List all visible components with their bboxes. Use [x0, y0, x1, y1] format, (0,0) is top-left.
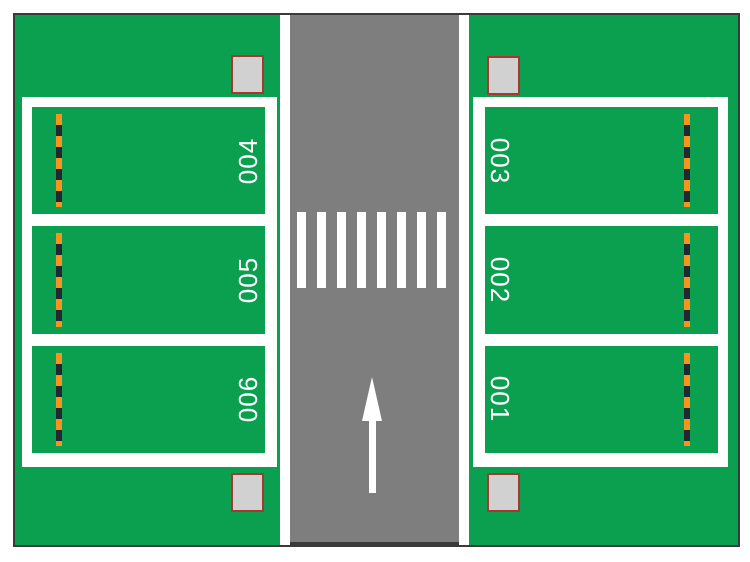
diagram-inner: 004 005 006 003 002 001: [15, 15, 738, 545]
crosswalk-stripe: [297, 212, 306, 288]
crosswalk-stripe: [317, 212, 326, 288]
parking-space-003: 003: [485, 107, 718, 214]
space-label: 004: [235, 137, 261, 183]
crosswalk-stripe: [397, 212, 406, 288]
crosswalk-stripe: [357, 212, 366, 288]
parking-lot-diagram: 004 005 006 003 002 001: [13, 13, 740, 547]
dashed-sensor-strip: [684, 233, 690, 326]
space-label: 005: [235, 257, 261, 303]
dashed-sensor-strip: [56, 114, 62, 207]
road-edge-stripe-left: [280, 15, 290, 545]
dashed-sensor-strip: [56, 353, 62, 446]
road: [290, 15, 459, 545]
crosswalk-stripe: [437, 212, 446, 288]
space-label: 002: [487, 257, 513, 303]
crosswalk: [297, 212, 447, 288]
space-label: 001: [487, 376, 513, 422]
road-edge-stripe-right: [459, 15, 469, 545]
crosswalk-stripe: [337, 212, 346, 288]
parking-space-006: 006: [32, 346, 265, 453]
right-parking-group: 003 002 001: [473, 97, 728, 467]
marker-block-top-left: [231, 55, 264, 94]
space-label: 003: [487, 137, 513, 183]
dashed-sensor-strip: [56, 233, 62, 326]
marker-block-bottom-left: [231, 473, 264, 512]
parking-space-002: 002: [485, 226, 718, 333]
up-arrow-icon: [362, 377, 382, 421]
marker-block-top-right: [487, 56, 520, 95]
dashed-sensor-strip: [684, 353, 690, 446]
left-parking-group: 004 005 006: [22, 97, 277, 467]
dashed-sensor-strip: [684, 114, 690, 207]
marker-block-bottom-right: [487, 473, 520, 512]
space-label: 006: [235, 376, 261, 422]
up-arrow-shaft: [369, 419, 376, 493]
crosswalk-stripe: [417, 212, 426, 288]
crosswalk-stripe: [377, 212, 386, 288]
parking-space-001: 001: [485, 346, 718, 453]
parking-space-005: 005: [32, 226, 265, 333]
parking-space-004: 004: [32, 107, 265, 214]
